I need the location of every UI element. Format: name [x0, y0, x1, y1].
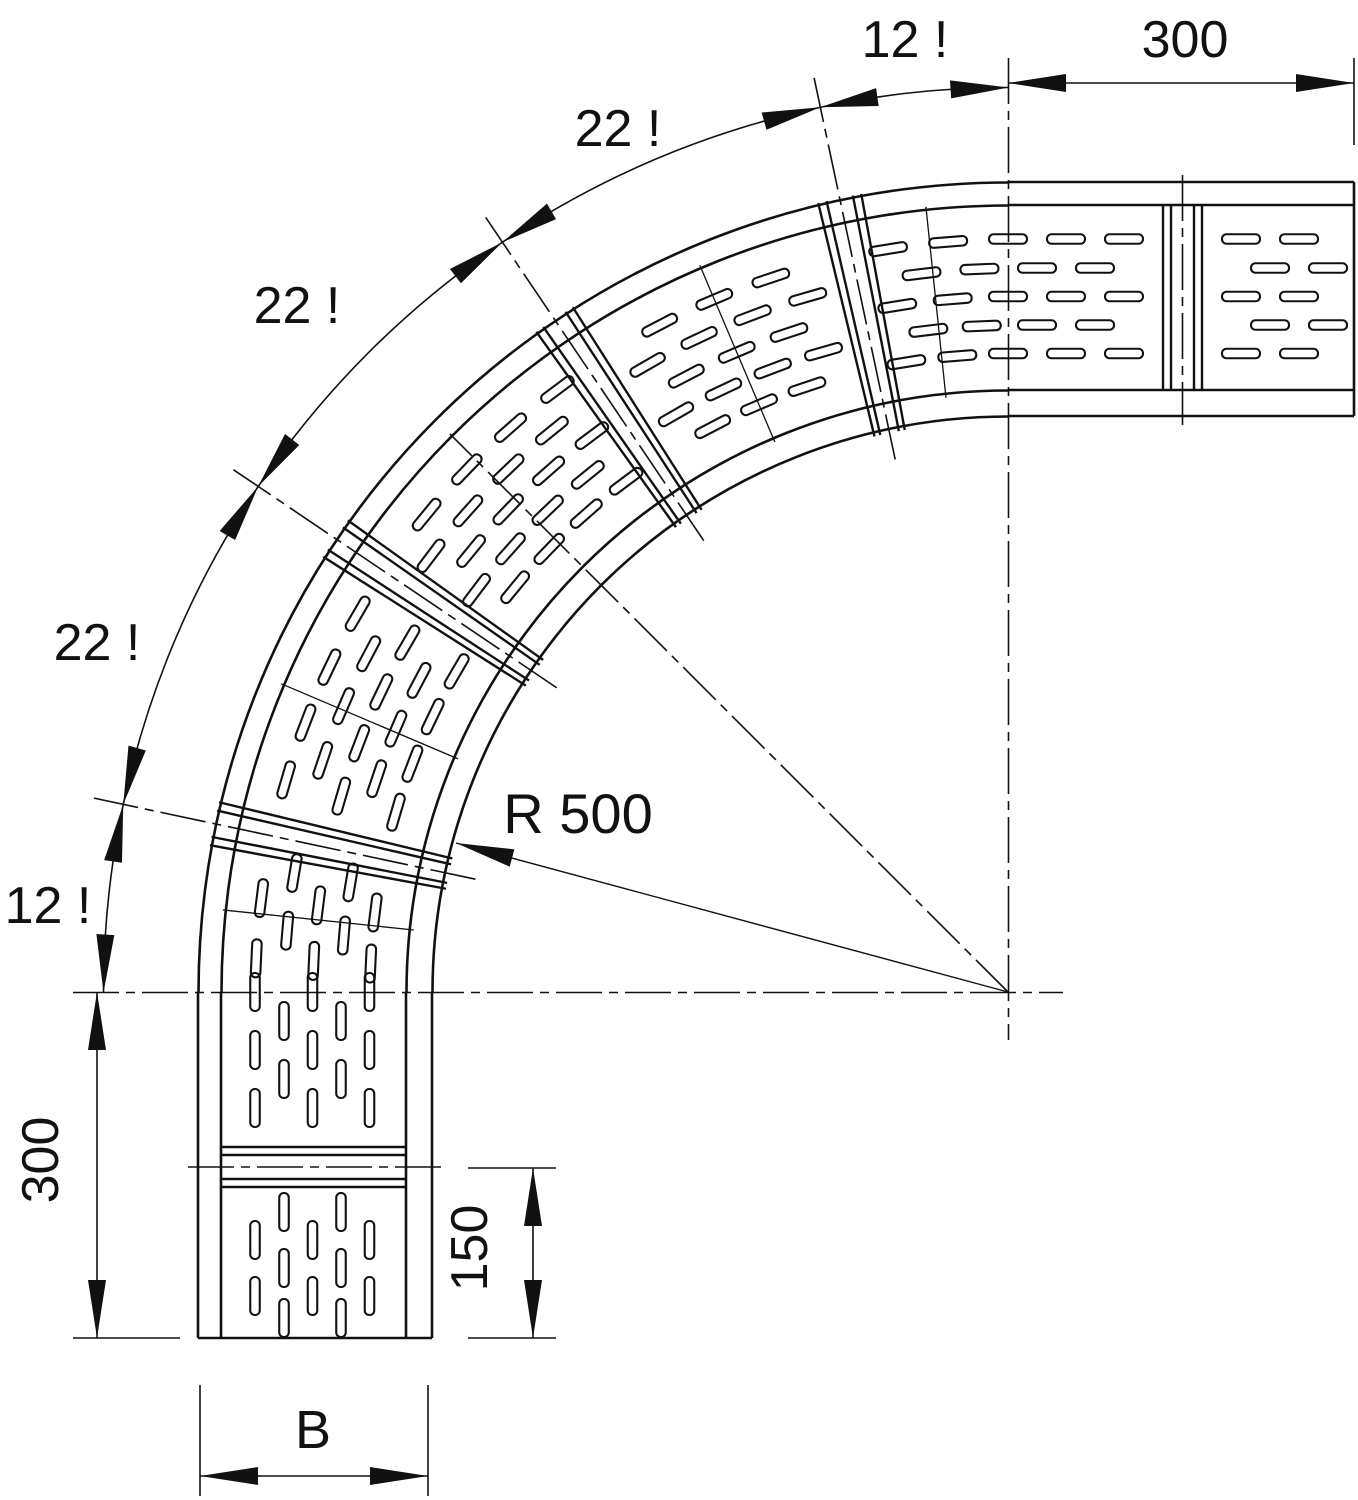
drawing-linework	[73, 58, 1354, 1496]
dim-label-tray-width: B	[295, 1400, 331, 1460]
dimension-labels: 12 ! 22 ! 22 ! 22 ! 12 ! 300 300 150 B R…	[5, 11, 1229, 1460]
dim-label-end-segment: 150	[441, 1205, 499, 1292]
dim-label-segment-angle-5: 12 !	[5, 877, 92, 935]
technical-drawing-page: 12 ! 22 ! 22 ! 22 ! 12 ! 300 300 150 B R…	[0, 0, 1358, 1500]
dim-label-tangent-left: 300	[12, 1117, 70, 1204]
dim-label-segment-angle-4: 22 !	[54, 614, 141, 672]
dim-label-segment-angle-2: 22 !	[575, 100, 662, 158]
dim-label-segment-angle-1: 12 !	[862, 11, 949, 69]
dim-label-tangent-top: 300	[1142, 11, 1229, 69]
cable-tray-bend-drawing: 12 ! 22 ! 22 ! 22 ! 12 ! 300 300 150 B R…	[0, 0, 1358, 1500]
dim-label-bend-radius: R 500	[503, 782, 652, 845]
dim-label-segment-angle-3: 22 !	[254, 277, 341, 335]
